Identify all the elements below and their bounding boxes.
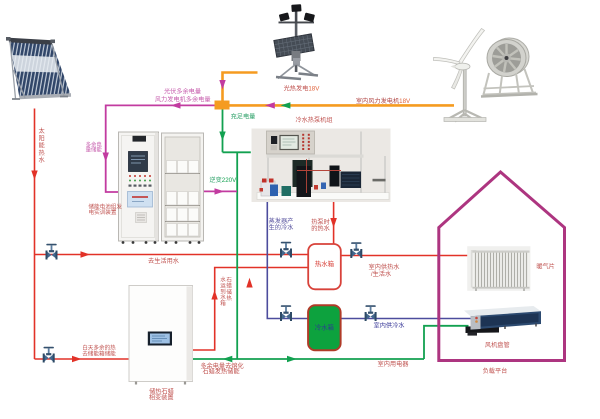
svg-text:室内供冷水: 室内供冷水 (374, 322, 406, 330)
svg-text:石蜡发热储能: 石蜡发热储能 (202, 368, 239, 376)
svg-text:相变装置: 相变装置 (149, 393, 174, 401)
svg-text:去生活用水: 去生活用水 (148, 257, 180, 265)
svg-text:水运到水箱石蜡储热: 水运到水箱石蜡储热 (220, 276, 232, 308)
svg-text:风力发电机多余电量: 风力发电机多余电量 (155, 96, 211, 104)
svg-text:暖气片: 暖气片 (536, 263, 555, 271)
svg-text:的热水: 的热水 (311, 225, 330, 233)
svg-text:冷水热泵机组: 冷水热泵机组 (295, 116, 332, 124)
svg-text:白天多余的热: 白天多余的热 (82, 344, 116, 352)
svg-text:室内用电器: 室内用电器 (378, 360, 410, 368)
svg-text:风机盘管: 风机盘管 (485, 341, 510, 349)
svg-text:电实训装置: 电实训装置 (89, 208, 117, 216)
svg-text:逆变220V: 逆变220V (209, 176, 237, 184)
svg-text:充足电量: 充足电量 (231, 112, 256, 120)
svg-text:/生活水: /生活水 (371, 270, 392, 278)
svg-text:生的冷水: 生的冷水 (269, 224, 295, 232)
svg-text:室内风力发电机18V: 室内风力发电机18V (356, 97, 411, 105)
svg-text:太阳能热水: 太阳能热水 (39, 127, 46, 164)
svg-text:热水箱: 热水箱 (315, 259, 335, 268)
svg-text:多余电量储能: 多余电量储能 (86, 140, 103, 153)
svg-text:室内供热水: 室内供热水 (369, 263, 401, 271)
svg-text:冷水箱: 冷水箱 (315, 323, 335, 332)
svg-text:光伏多余电量: 光伏多余电量 (164, 87, 201, 95)
svg-text:去储能箱储能: 去储能箱储能 (82, 349, 116, 357)
svg-text:负载平台: 负载平台 (483, 367, 508, 375)
svg-text:光热发电18V: 光热发电18V (284, 85, 321, 93)
